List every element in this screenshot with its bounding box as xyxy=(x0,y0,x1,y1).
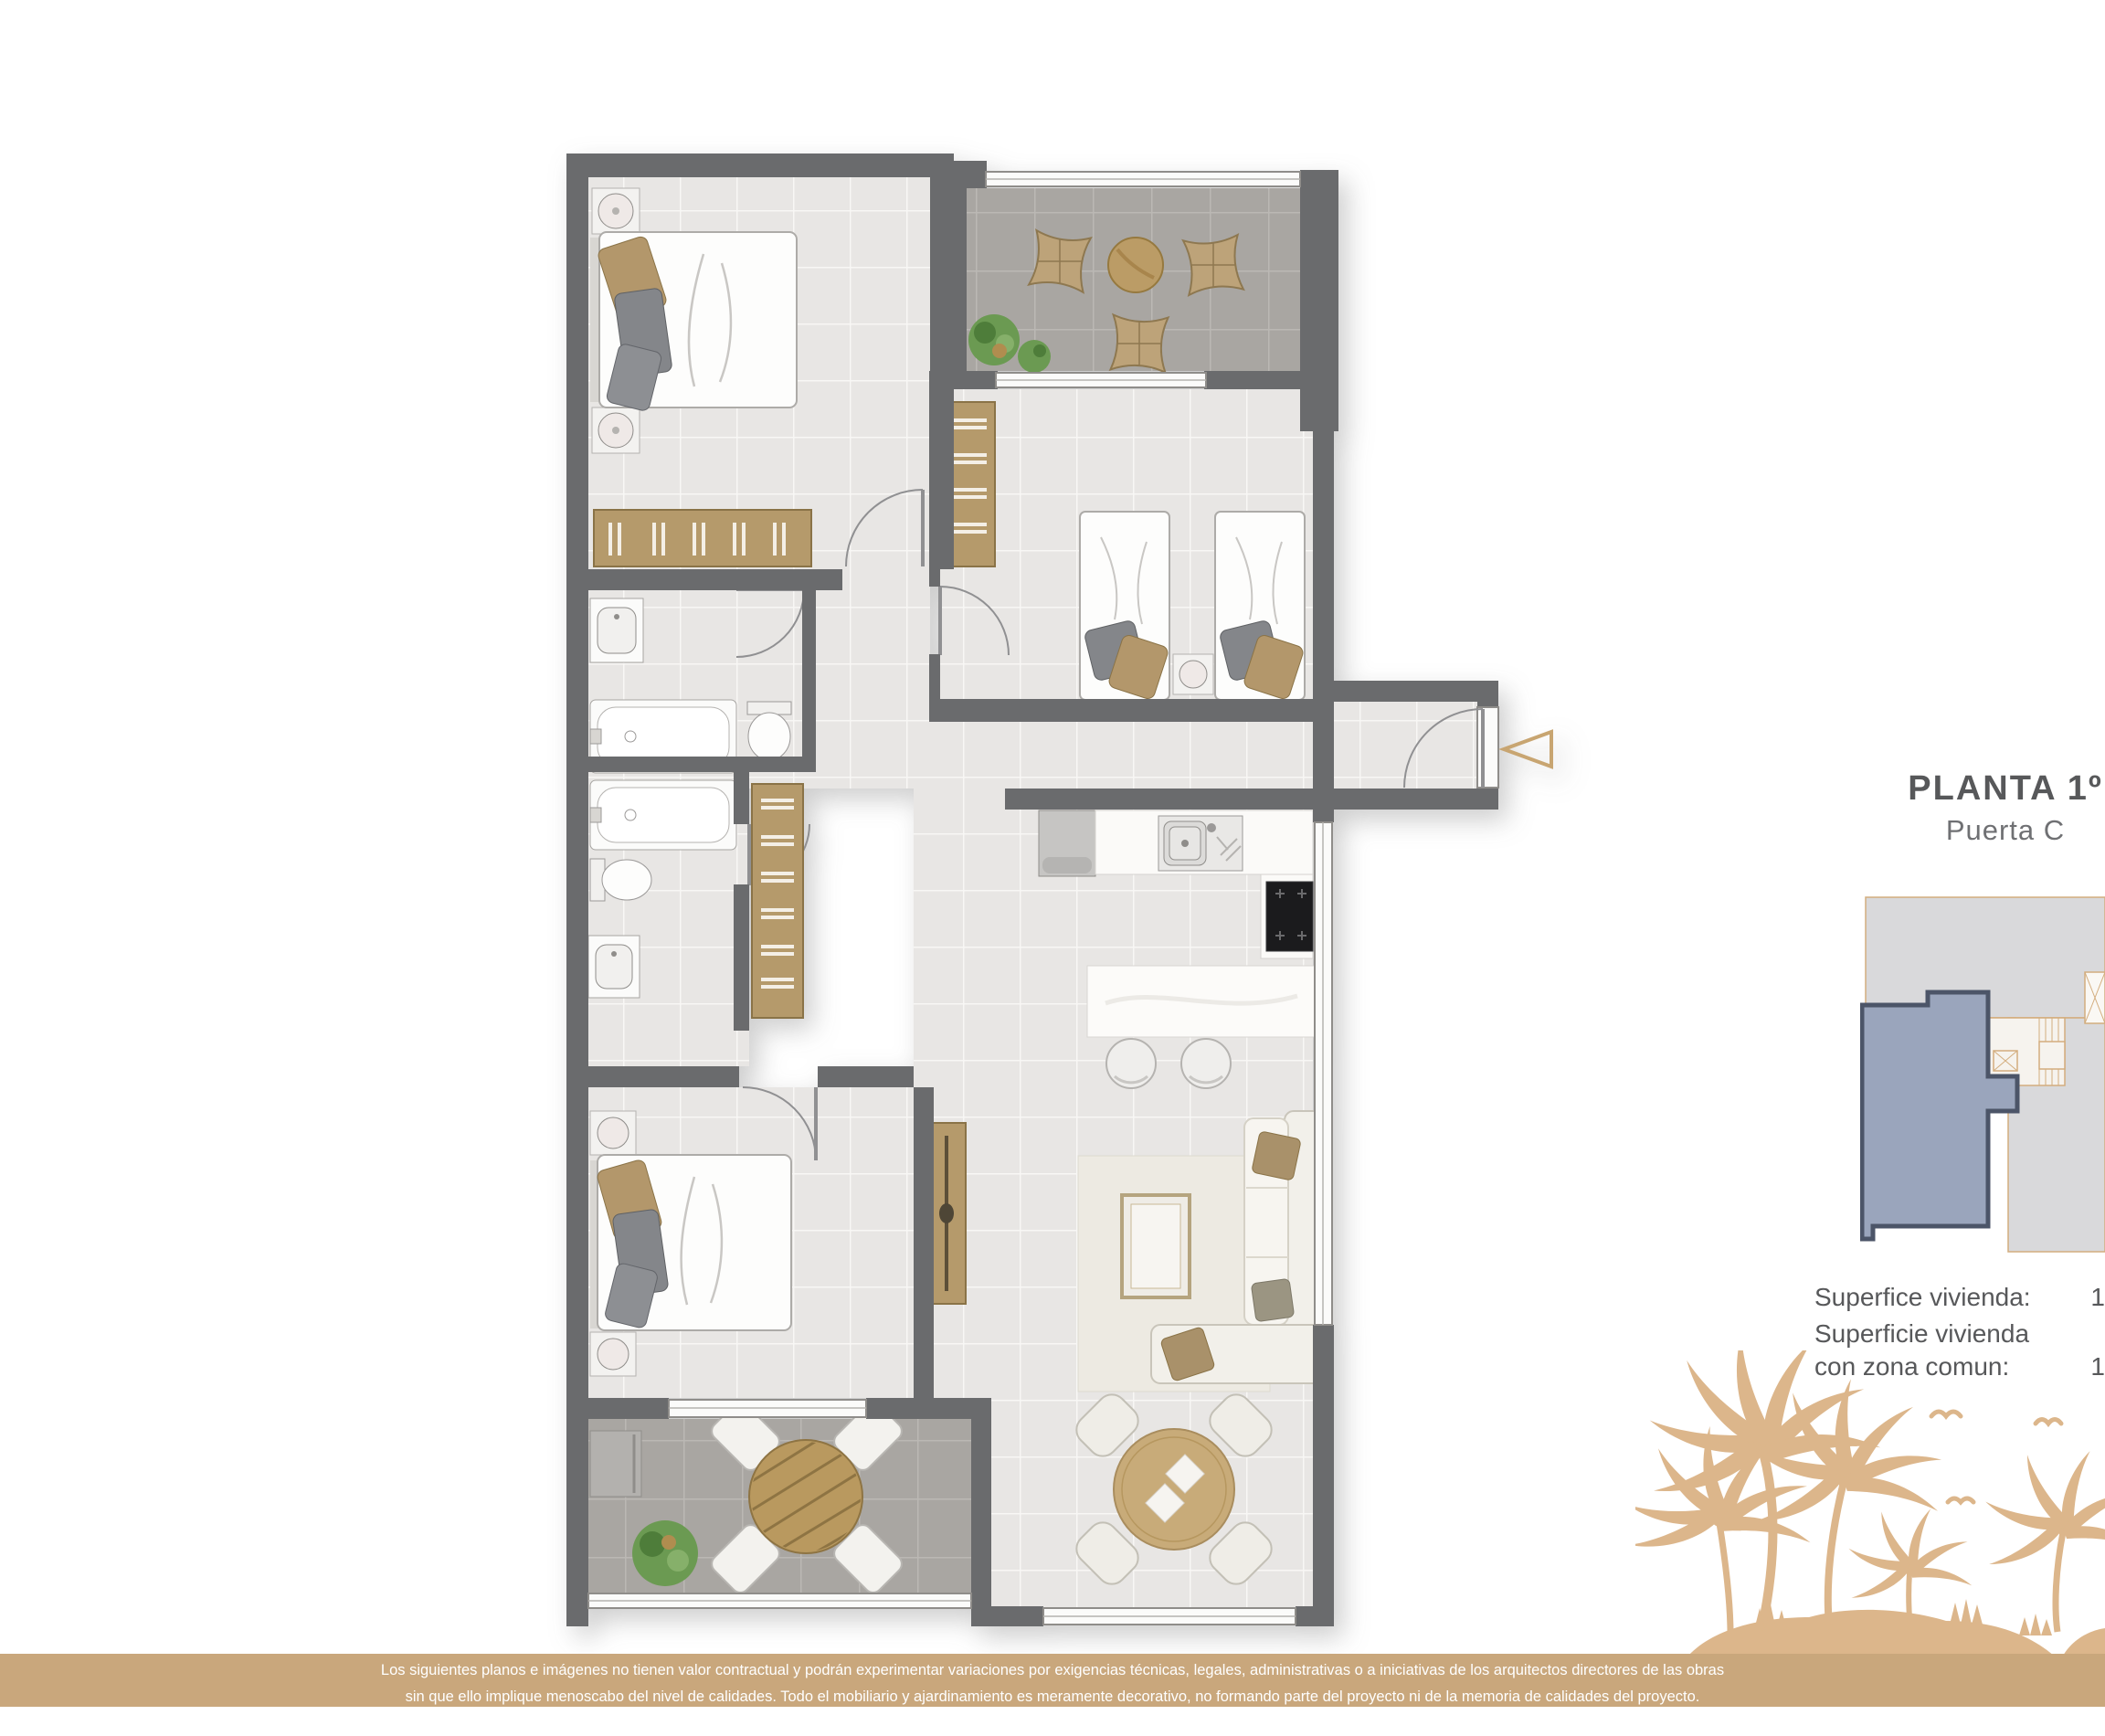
disclaimer-line-1: Los siguientes planos e imágenes no tien… xyxy=(0,1654,2105,1680)
palm-head xyxy=(1983,1449,2105,1570)
entry-arrow-icon xyxy=(1504,732,1551,767)
stool-icon xyxy=(1181,1039,1231,1088)
corridor-closet xyxy=(752,784,803,1018)
lamp-icon xyxy=(598,1117,629,1149)
round-terrace-table-icon xyxy=(749,1440,862,1553)
round-dining-table-icon xyxy=(1114,1429,1234,1550)
sand-mound xyxy=(1688,1610,2054,1656)
surface-value: 1 xyxy=(2090,1281,2105,1314)
door-subtitle: Puerta C xyxy=(1891,814,2105,847)
plant-icon xyxy=(632,1520,698,1586)
entry-opening xyxy=(1477,707,1498,788)
pillow xyxy=(1252,1131,1302,1181)
cooktop-icon xyxy=(1266,882,1313,951)
wardrobe-icon xyxy=(752,784,803,1018)
coffee-table-top xyxy=(1131,1204,1180,1288)
disclaimer-line-2: sin que ello implique menoscabo del nive… xyxy=(0,1680,2105,1707)
lamp-icon xyxy=(598,1339,629,1370)
floorplan xyxy=(566,153,1553,1634)
plan-title-block: PLANTA 1º Puerta C xyxy=(1891,769,2105,847)
keyplan xyxy=(1860,888,2105,1254)
palm-trees-decoration xyxy=(1635,1350,2105,1656)
disclaimer-bar: Los siguientes planos e imágenes no tien… xyxy=(0,1654,2105,1707)
surface-label: Superfice vivienda: xyxy=(1814,1281,2045,1314)
pillow xyxy=(1251,1278,1294,1321)
sand-mound xyxy=(2063,1628,2105,1656)
floor-title: PLANTA 1º xyxy=(1891,769,2105,809)
stool-icon xyxy=(1106,1039,1156,1088)
surface-row: Superfice vivienda: 1 xyxy=(1814,1281,2105,1314)
lamp-icon xyxy=(1179,661,1207,688)
plant-icon xyxy=(1018,340,1051,373)
